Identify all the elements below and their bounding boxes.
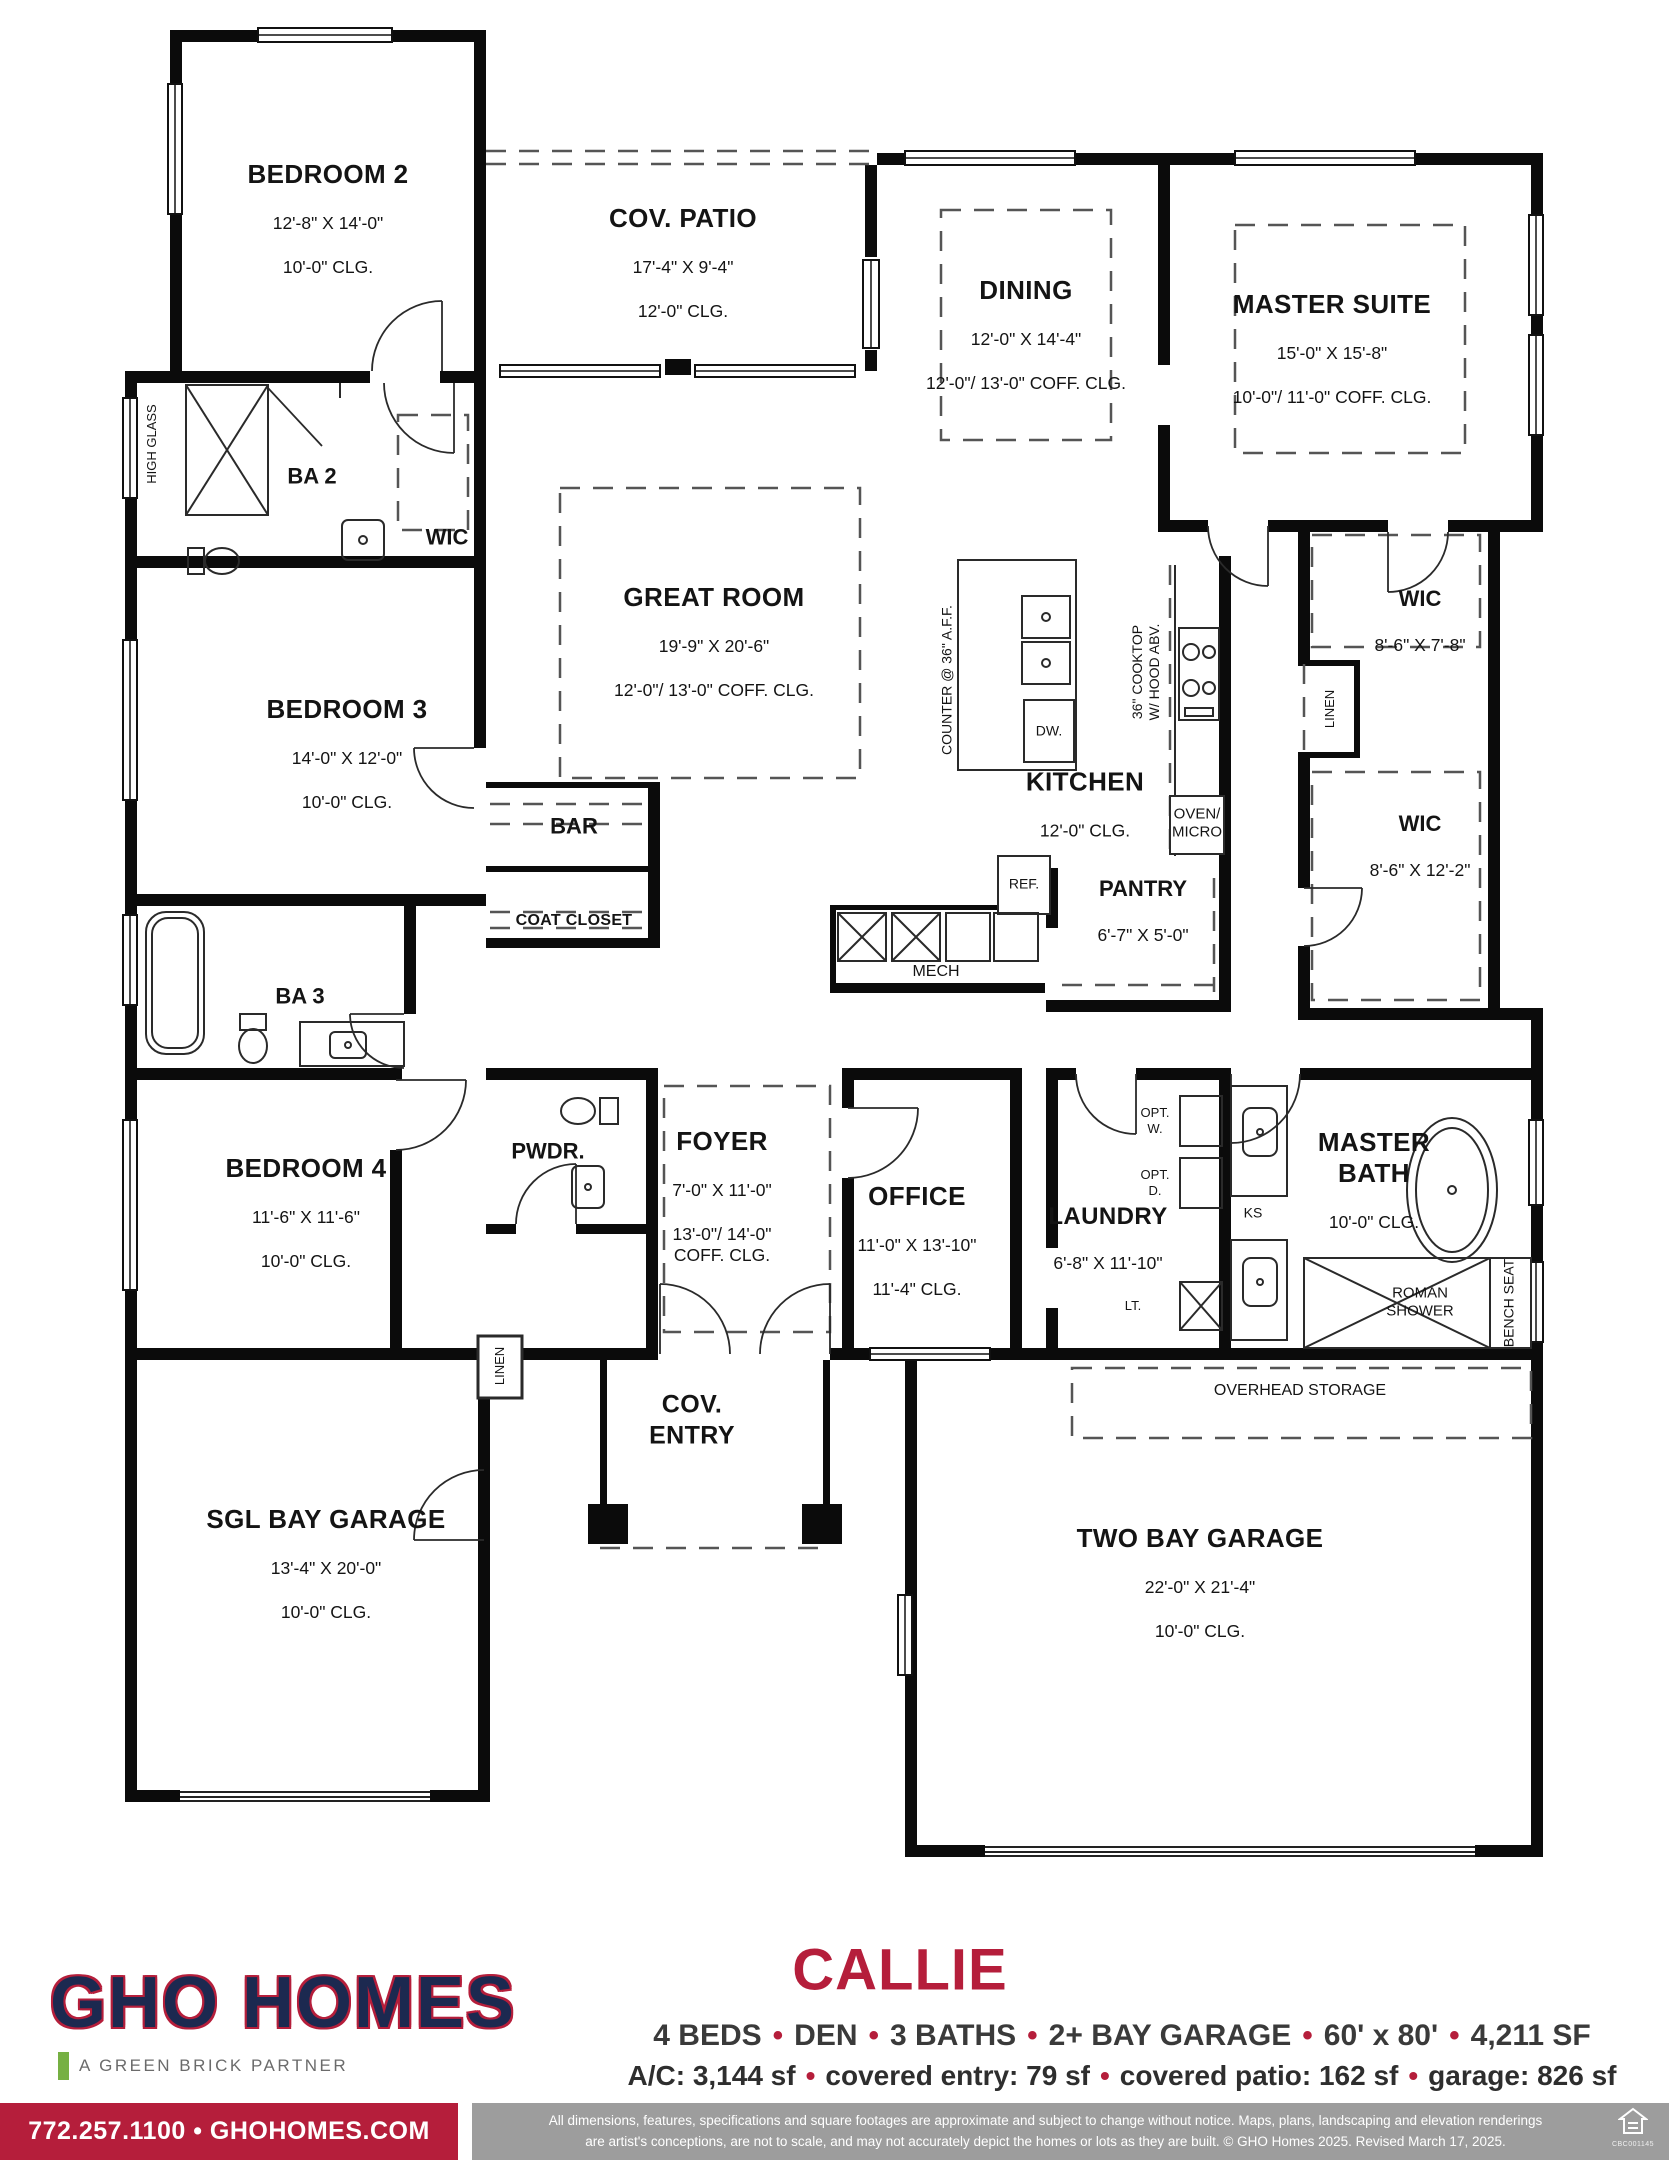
annotation-high-glass: HIGH GLASS (144, 404, 160, 483)
annotation-oven-micro: OVEN/ MICRO (1172, 806, 1222, 843)
room-label-office: OFFICE 11'-0" X 13'-10" 11'-4" CLG. (858, 1161, 977, 1319)
room-label-master-bath: MASTER BATH 10'-0" CLG. (1318, 1107, 1430, 1253)
license-number: CBC001145 (1607, 2141, 1659, 2148)
disclaimer-text: All dimensions, features, specifications… (472, 2111, 1669, 2152)
partner-lockup: A GREEN BRICK PARTNER (58, 2052, 348, 2080)
spec-den: DEN (762, 2019, 858, 2052)
annotation-knee-space: KS (1244, 1204, 1263, 1221)
room-label-great-room: GREAT ROOM 19'-9" X 20'-6" 12'-0"/ 13'-0… (614, 562, 814, 720)
annotation-linen1: LINEN (1322, 690, 1338, 728)
room-label-wic1: WIC 8'-6" X 7'-8" (1374, 566, 1465, 676)
room-label-sgl-garage: SGL BAY GARAGE 13'-4" X 20'-0" 10'-0" CL… (206, 1484, 445, 1642)
spec-total-sf: 4,211 SF (1438, 2019, 1591, 2052)
room-label-foyer: FOYER 7'-0" X 11'-0" 13'-0"/ 14'-0" COFF… (672, 1106, 772, 1286)
plan-areas: A/C: 3,144 sfcovered entry: 79 sfcovered… (628, 2060, 1617, 2092)
annotation-ref: REF. (1009, 875, 1039, 892)
disclaimer-line1: All dimensions, features, specifications… (492, 2111, 1599, 2131)
room-label-wic-bed2: WIC (426, 525, 469, 552)
plan-specs: 4 BEDSDEN3 BATHS2+ BAY GARAGE60' x 80'4,… (653, 2019, 1590, 2053)
room-label-wic2: WIC 8'-6" X 12'-2" (1370, 791, 1471, 901)
annotation-opt-dryer: OPT. D. (1141, 1167, 1170, 1199)
plan-title: CALLIE (792, 1937, 1007, 2004)
annotation-roman-shower: ROMAN SHOWER (1386, 1285, 1454, 1322)
room-label-bar: BAR (550, 814, 598, 841)
room-label-pwdr: PWDR. (511, 1139, 584, 1166)
partner-text: A GREEN BRICK PARTNER (79, 2056, 348, 2076)
contact-text: 772.257.1100 • GHOHOMES.COM (28, 2117, 430, 2146)
room-label-ba2: BA 2 (287, 464, 336, 491)
equal-housing-icon (1618, 2107, 1648, 2135)
contact-bar: 772.257.1100 • GHOHOMES.COM (0, 2103, 458, 2160)
area-covered-patio: covered patio: 162 sf (1090, 2060, 1398, 2091)
equal-housing-lockup: CBC001145 (1607, 2107, 1659, 2148)
area-covered-entry: covered entry: 79 sf (796, 2060, 1090, 2091)
room-label-bedroom2: BEDROOM 2 12'-8" X 14'-0" 10'-0" CLG. (247, 139, 408, 297)
room-label-cov-patio: COV. PATIO 17'-4" X 9'-4" 12'-0" CLG. (609, 183, 757, 341)
annotation-overhead-storage: OVERHEAD STORAGE (1214, 1381, 1386, 1401)
room-label-kitchen: KITCHEN 12'-0" CLG. (1026, 747, 1144, 862)
annotation-bench-seat: BENCH SEAT (1500, 1259, 1517, 1347)
green-brick-icon (58, 2052, 69, 2080)
annotation-linen2: LINEN (492, 1347, 508, 1385)
room-label-coat-closet: COAT CLOSET (516, 911, 633, 931)
openings (180, 1790, 1475, 1857)
room-label-cov-entry: COV. ENTRY (649, 1390, 735, 1451)
room-label-bedroom3: BEDROOM 3 14'-0" X 12'-0" 10'-0" CLG. (266, 674, 427, 832)
area-ac: A/C: 3,144 sf (628, 2060, 796, 2091)
annotation-cooktop: 36" COOKTOP W/ HOOD ABV. (1129, 624, 1163, 721)
room-label-master-suite: MASTER SUITE 15'-0" X 15'-8" 10'-0"/ 11'… (1233, 269, 1432, 427)
spec-beds: 4 BEDS (653, 2019, 761, 2052)
room-label-two-bay-garage: TWO BAY GARAGE 22'-0" X 21'-4" 10'-0" CL… (1077, 1503, 1324, 1661)
annotation-opt-washer: OPT. W. (1141, 1105, 1170, 1137)
spec-baths: 3 BATHS (857, 2019, 1016, 2052)
floor-plan-sheet: BEDROOM 2 12'-8" X 14'-0" 10'-0" CLG. CO… (0, 0, 1669, 2160)
room-label-pantry: PANTRY 6'-7" X 5'-0" (1097, 856, 1188, 966)
annotation-laundry-tub: LT. (1125, 1298, 1141, 1314)
annotation-mech: MECH (912, 962, 959, 982)
gho-homes-logo: GHO HOMES (50, 1962, 516, 2044)
spec-lot: 60' x 80' (1291, 2019, 1438, 2052)
room-label-dining: DINING 12'-0" X 14'-4" 12'-0"/ 13'-0" CO… (926, 255, 1126, 413)
annotation-dw: DW. (1036, 722, 1062, 739)
annotation-counter-aff: COUNTER @ 36" A.F.F. (938, 605, 955, 755)
spec-garage: 2+ BAY GARAGE (1016, 2019, 1291, 2052)
room-label-bedroom4: BEDROOM 4 11'-6" X 11'-6" 10'-0" CLG. (225, 1133, 386, 1291)
area-garage: garage: 826 sf (1398, 2060, 1616, 2091)
disclaimer-line2: are artist's conceptions, are not to sca… (492, 2132, 1599, 2152)
disclaimer-bar: All dimensions, features, specifications… (472, 2103, 1669, 2160)
room-label-ba3: BA 3 (275, 984, 324, 1011)
